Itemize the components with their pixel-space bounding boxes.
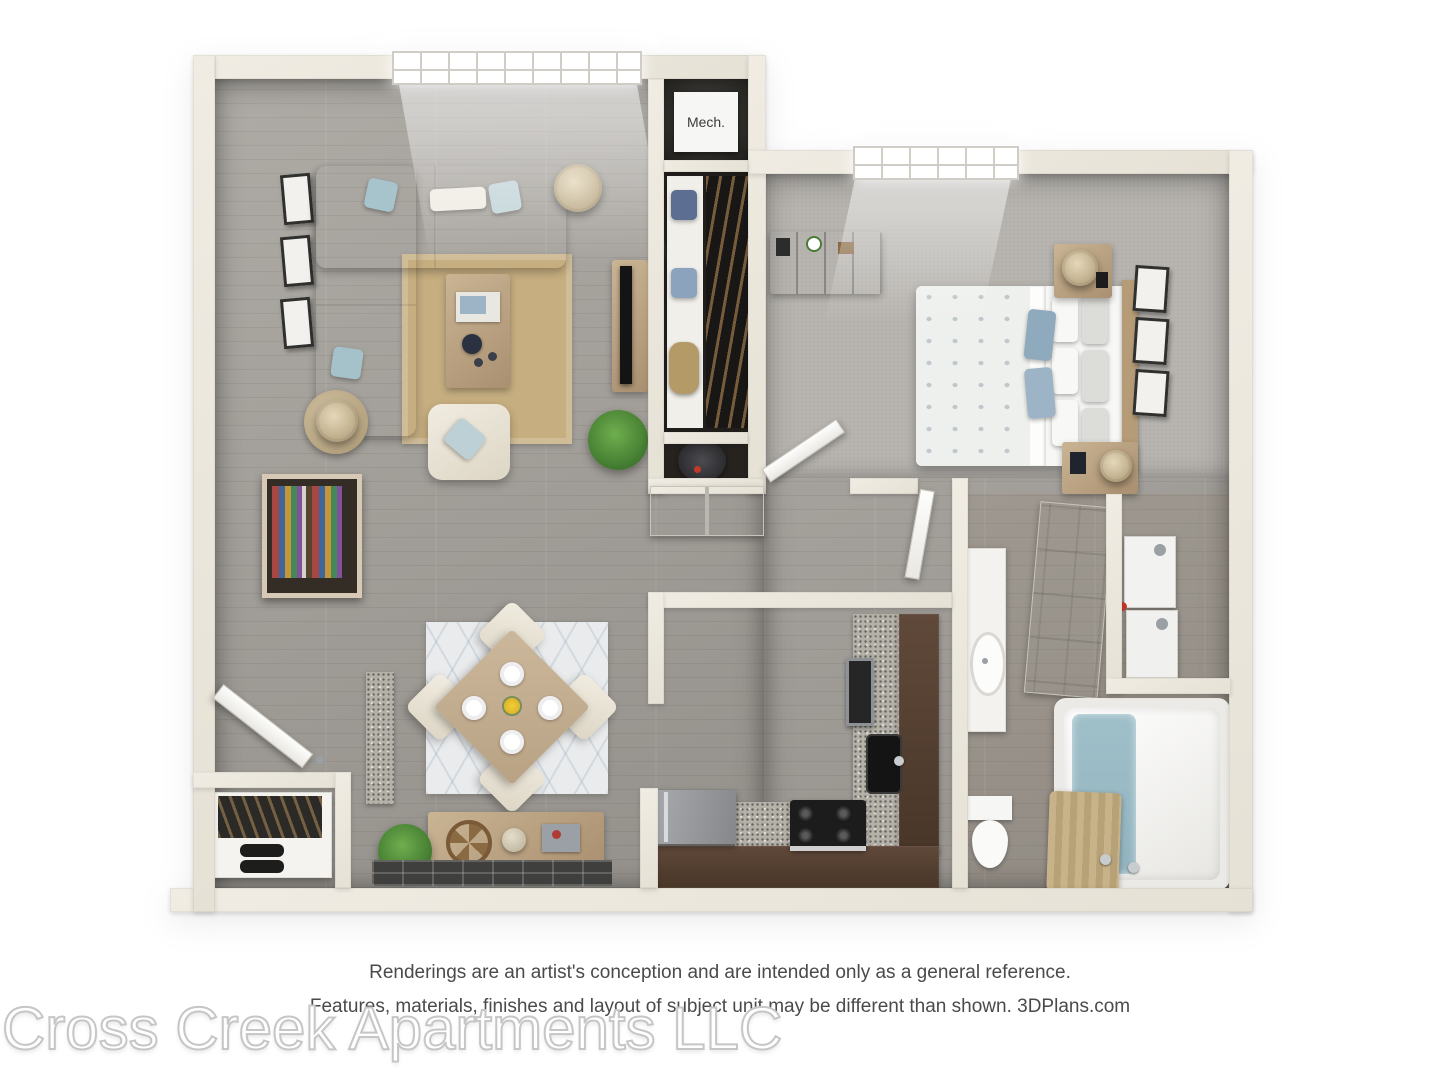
burner-icon xyxy=(836,828,851,843)
disclaimer-line-1: Renderings are an artist's conception an… xyxy=(0,956,1440,990)
candle-decor xyxy=(552,830,561,839)
tray-book xyxy=(460,296,486,314)
shower-curtain xyxy=(1046,791,1121,893)
hanging-clothes xyxy=(706,176,748,428)
bed-duvet xyxy=(916,286,1034,466)
picture-frame-icon xyxy=(280,173,314,225)
vanity-sink xyxy=(970,632,1006,696)
sink-drain xyxy=(982,658,988,664)
throw-pillow xyxy=(363,177,399,213)
wall-art-frame xyxy=(1132,265,1169,313)
washer-dial-icon xyxy=(1154,544,1166,556)
flower-centerpiece-icon xyxy=(504,698,520,714)
wall-closet-left xyxy=(648,79,664,494)
refrigerator-handle xyxy=(664,792,668,842)
place-setting-plate xyxy=(538,696,562,720)
decor-tray xyxy=(542,824,580,852)
burner-icon xyxy=(798,806,813,821)
place-setting-plate xyxy=(462,696,486,720)
entry-door-knob-icon xyxy=(316,756,324,764)
flower-vase-icon xyxy=(808,238,820,250)
nightstand-phone xyxy=(1096,272,1108,288)
wall-mech-divider xyxy=(664,160,748,172)
bedroom-window xyxy=(853,146,1019,180)
wall-kitchen-left-upper xyxy=(648,592,664,704)
wall-art-frame xyxy=(1132,317,1169,365)
picture-frame-icon xyxy=(280,235,314,287)
dryer-unit xyxy=(1126,610,1178,678)
wall-entry-nook-top xyxy=(193,772,351,788)
folded-clothes xyxy=(671,268,697,298)
floor-plan: Mech. xyxy=(0,0,1440,1080)
rope-ball-decor xyxy=(502,828,526,852)
toilet-tank xyxy=(966,796,1012,820)
picture-frame-icon xyxy=(1132,265,1169,313)
bed-accent-pillow xyxy=(1023,309,1056,362)
outer-wall-right xyxy=(1229,150,1253,912)
place-setting-plate xyxy=(500,662,524,686)
wall-kitchen-left-lower xyxy=(640,788,658,888)
wall-hall-b xyxy=(850,478,918,494)
hall-closet-double-doors xyxy=(650,486,764,536)
bed-pillow xyxy=(1052,400,1078,446)
wall-oven-microwave xyxy=(846,658,874,726)
picture-frame-icon xyxy=(1132,369,1169,417)
living-room-window xyxy=(392,51,642,85)
tub-faucet-icon xyxy=(1128,862,1139,873)
nightstand-tablet xyxy=(1070,452,1086,474)
wall-closet-right xyxy=(748,55,766,494)
washer-unit xyxy=(1124,536,1176,608)
outer-wall-bottom xyxy=(170,888,1253,912)
refrigerator xyxy=(656,790,736,844)
throw-pillow xyxy=(488,180,523,215)
nightstand-lamp-icon xyxy=(1100,450,1132,482)
decor-bowl xyxy=(462,334,482,354)
tv-screen-icon xyxy=(620,266,632,384)
faucet-icon xyxy=(894,756,904,766)
decor-glass xyxy=(474,358,483,367)
kitchen-cabinets-right xyxy=(899,614,939,854)
wall-kitchen-top xyxy=(648,592,952,608)
folded-clothes xyxy=(671,190,697,220)
wall-bath-closet xyxy=(1106,494,1122,694)
wall-bath-divider xyxy=(952,478,968,888)
wall-art-frame xyxy=(280,235,314,287)
wall-art-frame xyxy=(280,297,314,349)
wall-wardrobe-divider xyxy=(664,432,748,444)
bed-pillow xyxy=(1052,296,1078,342)
wall-art-frame xyxy=(280,173,314,225)
throw-pillow xyxy=(330,346,364,380)
floor-lamp-icon xyxy=(554,164,602,212)
wall-art-frame xyxy=(1132,369,1169,417)
potted-fern-icon xyxy=(588,410,648,470)
mech-unit: Mech. xyxy=(674,92,738,152)
bookshelf-books xyxy=(272,486,342,578)
picture-frame-icon xyxy=(280,297,314,349)
duffel-bag xyxy=(669,342,699,394)
door-mat xyxy=(372,860,612,886)
decor-box xyxy=(838,242,854,254)
throw-pillow xyxy=(429,187,486,212)
burner-icon xyxy=(836,806,851,821)
dryer-dial-icon xyxy=(1156,618,1168,630)
tub-faucet-icon xyxy=(1100,854,1111,865)
decor-glass xyxy=(488,352,497,361)
wall-entry-nook-right xyxy=(335,772,351,888)
burner-icon xyxy=(798,828,813,843)
water-heater-icon xyxy=(678,440,726,482)
heater-valve xyxy=(694,466,701,473)
bed-pillow-patterned xyxy=(1082,350,1108,402)
stove-handle xyxy=(790,846,866,851)
shoe-pair xyxy=(240,844,284,857)
entry-half-wall xyxy=(366,672,394,804)
watermark: Cross Creek Apartments LLC xyxy=(2,994,782,1063)
bed-pillow xyxy=(1052,348,1078,394)
kitchen-cabinets-bottom xyxy=(656,846,939,888)
picture-frame-icon xyxy=(1132,317,1169,365)
bed-accent-pillow xyxy=(1024,367,1056,419)
bed-pillow-patterned xyxy=(1082,292,1108,344)
shoe-pair xyxy=(240,860,284,873)
wall-laundry-bottom xyxy=(1106,678,1231,694)
nightstand-lamp-icon xyxy=(1062,250,1098,286)
table-lamp-icon xyxy=(316,400,358,442)
page: Mech. xyxy=(0,0,1440,1080)
place-setting-plate xyxy=(500,730,524,754)
mech-label: Mech. xyxy=(687,114,725,130)
shoe-shelf-top xyxy=(218,796,322,838)
dresser-photo-frame xyxy=(776,238,790,256)
